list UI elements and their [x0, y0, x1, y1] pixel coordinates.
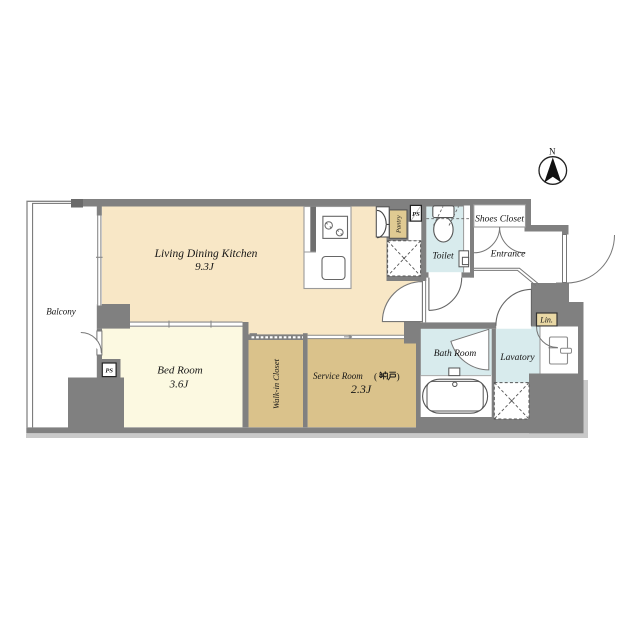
svg-text:Balcony: Balcony [46, 307, 76, 317]
svg-text:2.3J: 2.3J [351, 382, 372, 396]
svg-text:Bed Room: Bed Room [157, 365, 203, 377]
svg-text:Shoes Closet: Shoes Closet [475, 214, 524, 224]
svg-text:Walk-in Closet: Walk-in Closet [271, 358, 281, 409]
svg-text:PS: PS [105, 367, 113, 374]
svg-text:): ) [397, 371, 400, 382]
svg-text:Lavatory: Lavatory [499, 353, 535, 363]
svg-text:PS: PS [412, 211, 420, 218]
svg-text:Service Room: Service Room [313, 371, 363, 381]
svg-text:N: N [549, 147, 556, 157]
svg-text:3.6J: 3.6J [169, 378, 190, 390]
svg-text:Bath Room: Bath Room [434, 349, 477, 359]
svg-text:Pantry: Pantry [396, 215, 403, 234]
svg-text:Toilet: Toilet [432, 252, 454, 262]
svg-text:Lin.: Lin. [539, 316, 553, 325]
svg-text:Living Dining Kitchen: Living Dining Kitchen [154, 248, 258, 260]
svg-text:Entrance: Entrance [490, 249, 526, 259]
svg-text:(: ( [374, 371, 377, 382]
svg-text:9.3J: 9.3J [195, 261, 215, 273]
